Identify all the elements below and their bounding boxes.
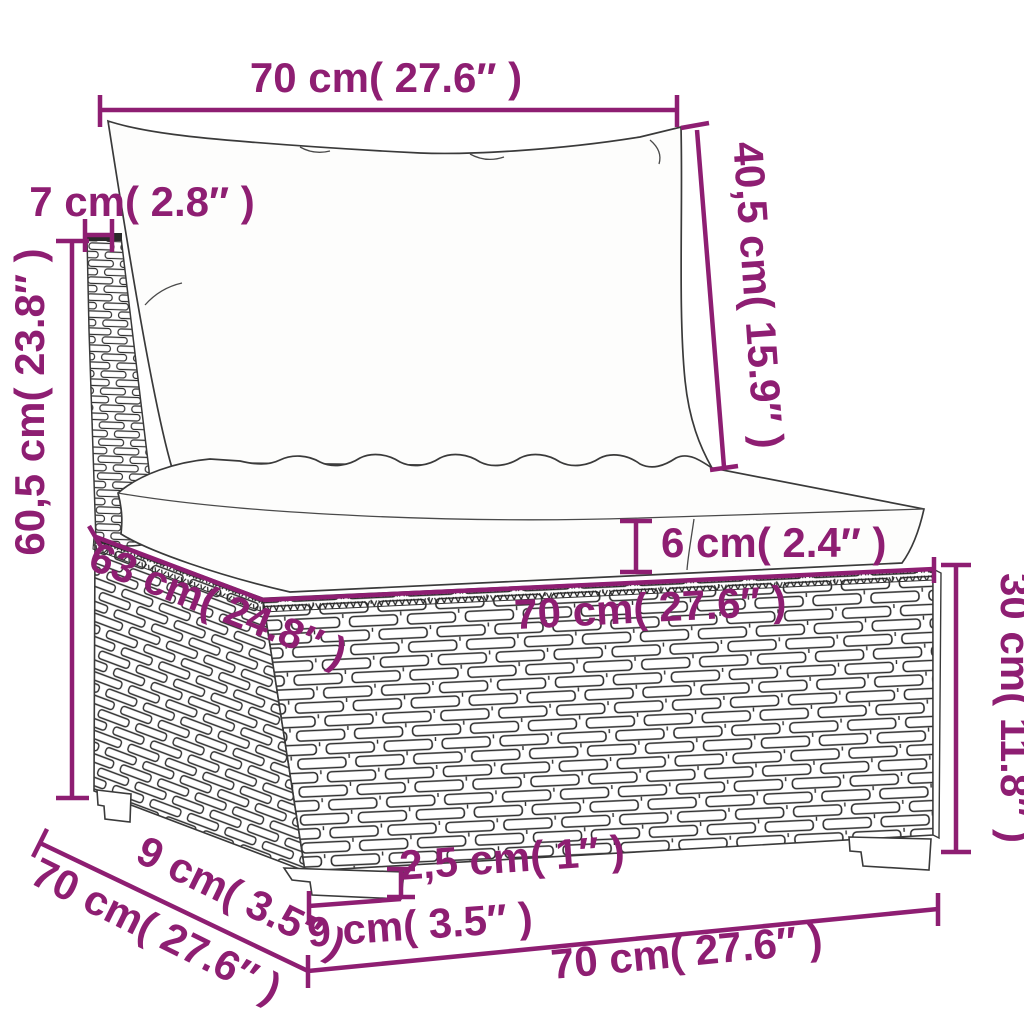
dim-base-height-label: 30 cm( 11.8″ ) — [992, 573, 1024, 843]
dim-total-height-label: 60,5 cm( 23.8″ ) — [6, 248, 53, 555]
foot-front-left — [284, 868, 404, 899]
dim-front-foot-width: 9 cm( 3.5″ ) — [306, 891, 534, 956]
dim-total-height: 60,5 cm( 23.8″ ) — [6, 241, 89, 798]
dim-seat-cushion-thickness-label: 6 cm( 2.4″ ) — [661, 519, 887, 566]
dim-base-height-line — [941, 565, 971, 852]
dim-bottom-front-width-label: 70 cm( 27.6″ ) — [549, 915, 825, 988]
foot-back-left — [97, 790, 131, 822]
dim-top-width-label: 70 cm( 27.6″ ) — [250, 54, 522, 101]
dim-total-height-line — [56, 241, 89, 798]
dim-panel-thickness-label: 7 cm( 2.8″ ) — [29, 178, 255, 225]
dim-top-width: 70 cm( 27.6″ ) — [100, 54, 677, 127]
foot-front-right — [849, 837, 931, 870]
dim-base-height: 30 cm( 11.8″ ) — [941, 565, 1024, 852]
base-right-edge — [933, 569, 941, 838]
back-cushion — [108, 121, 712, 468]
dim-back-cushion-height-label: 40,5 cm( 15.9″ ) — [724, 140, 792, 450]
dimension-diagram: 70 cm( 27.6″ ) 40,5 cm( 15.9″ ) 7 cm( 2.… — [0, 0, 1024, 1024]
sofa-dimension-drawing: 70 cm( 27.6″ ) 40,5 cm( 15.9″ ) 7 cm( 2.… — [0, 0, 1024, 1024]
sofa-line-art — [85, 121, 941, 899]
dim-back-cushion-height: 40,5 cm( 15.9″ ) — [681, 123, 793, 470]
